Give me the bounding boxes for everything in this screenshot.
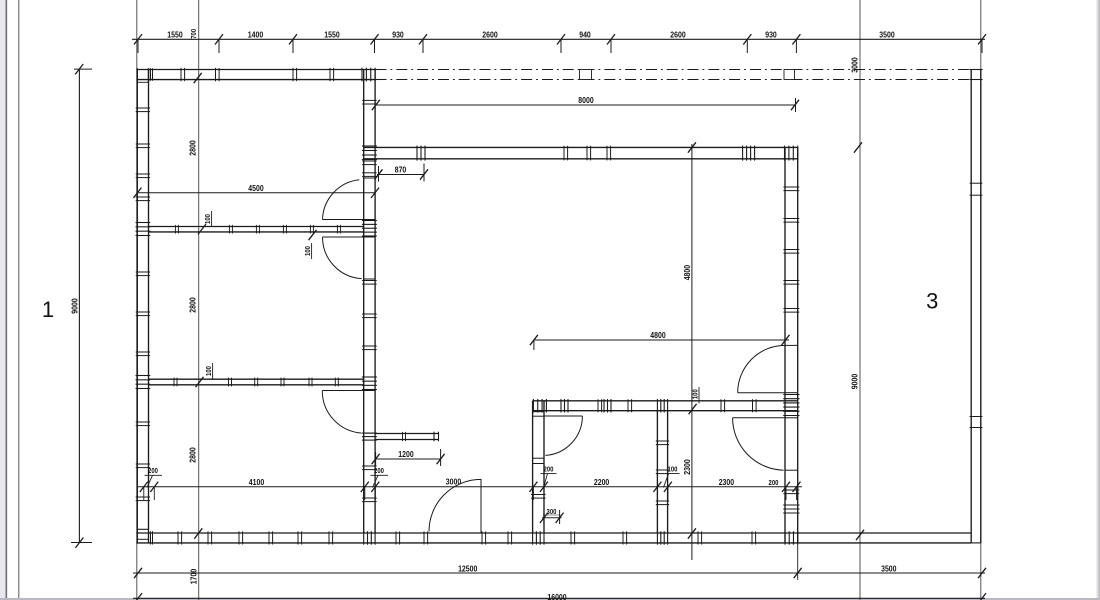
svg-text:940: 940 [579, 29, 591, 39]
svg-text:4100: 4100 [249, 477, 265, 487]
svg-text:2200: 2200 [594, 477, 610, 487]
svg-text:3: 3 [926, 288, 938, 313]
svg-text:2800: 2800 [188, 297, 198, 313]
svg-text:100: 100 [668, 467, 678, 474]
svg-text:2800: 2800 [188, 140, 198, 156]
svg-text:2300: 2300 [682, 459, 692, 475]
svg-text:8000: 8000 [578, 95, 594, 105]
svg-text:1200: 1200 [398, 449, 414, 459]
svg-text:3000: 3000 [446, 477, 462, 487]
svg-text:700: 700 [191, 29, 198, 39]
svg-text:100: 100 [693, 389, 700, 399]
svg-text:2600: 2600 [670, 29, 686, 39]
svg-text:1550: 1550 [324, 29, 340, 39]
svg-text:1700: 1700 [188, 568, 198, 584]
svg-text:4800: 4800 [682, 265, 692, 281]
svg-text:2300: 2300 [719, 477, 735, 487]
svg-text:9000: 9000 [70, 298, 80, 314]
svg-text:200: 200 [769, 480, 779, 487]
svg-text:3500: 3500 [879, 29, 895, 39]
svg-text:16000: 16000 [547, 592, 567, 600]
svg-text:3500: 3500 [881, 563, 897, 573]
svg-text:930: 930 [392, 29, 404, 39]
svg-text:200: 200 [544, 467, 554, 474]
svg-text:200: 200 [148, 468, 158, 475]
svg-text:9000: 9000 [850, 373, 860, 389]
svg-text:100: 100 [206, 366, 213, 376]
svg-text:2600: 2600 [482, 29, 498, 39]
svg-text:100: 100 [305, 246, 312, 256]
svg-text:2800: 2800 [188, 447, 198, 463]
svg-text:870: 870 [395, 165, 407, 175]
svg-text:3000: 3000 [850, 57, 860, 73]
svg-text:4800: 4800 [650, 330, 666, 340]
svg-text:12500: 12500 [458, 563, 478, 573]
svg-text:4500: 4500 [248, 183, 264, 193]
svg-text:1400: 1400 [248, 29, 264, 39]
svg-text:100: 100 [205, 214, 212, 224]
svg-text:1: 1 [42, 297, 54, 322]
svg-text:200: 200 [374, 468, 384, 475]
svg-text:930: 930 [765, 29, 777, 39]
svg-text:1550: 1550 [167, 29, 183, 39]
